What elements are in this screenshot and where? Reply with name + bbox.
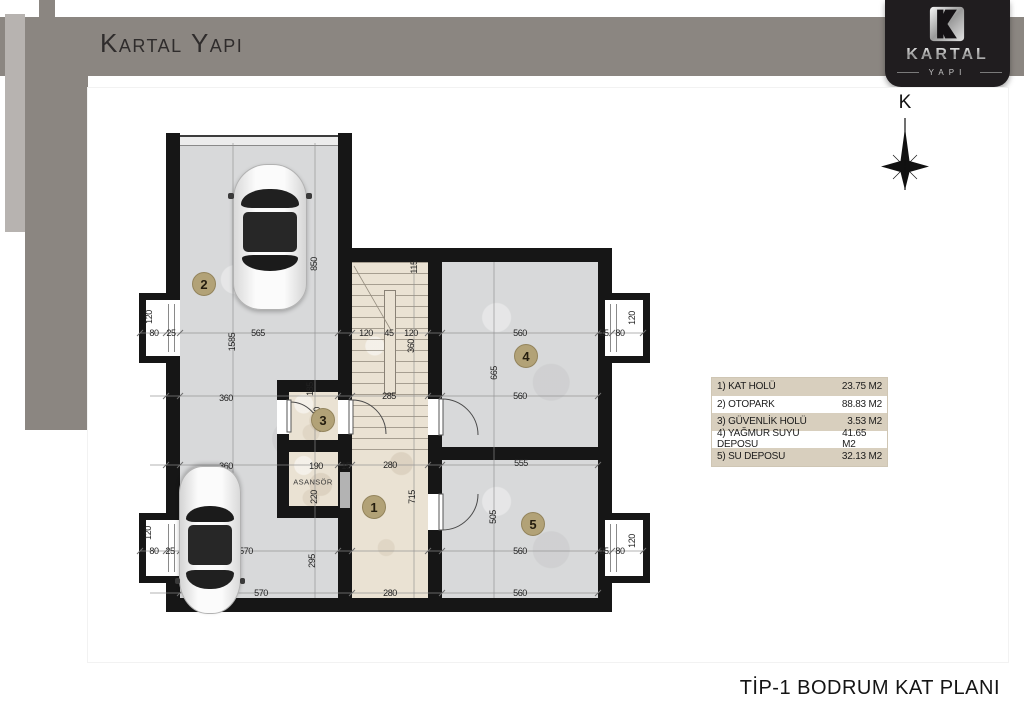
dimension-label: 295 bbox=[307, 554, 317, 568]
legend-area-value: 32.13 M2 bbox=[842, 451, 882, 462]
door-opening-room5 bbox=[428, 494, 442, 530]
logo-wordmark: KARTAL bbox=[885, 46, 1010, 64]
dimension-label: 190 bbox=[309, 461, 323, 471]
dimension-label: 220 bbox=[309, 490, 319, 504]
car-rear-window bbox=[186, 506, 233, 522]
room-number-badge: 2 bbox=[192, 272, 216, 296]
dimension-label: 120 bbox=[144, 310, 154, 324]
car-roof bbox=[188, 525, 233, 565]
company-logo: KARTAL YAPI bbox=[885, 0, 1010, 87]
legend-table: 1) KAT HOLÜ23.75 M22) OTOPARK88.83 M23) … bbox=[712, 378, 887, 466]
dimension-label: 120 bbox=[404, 328, 418, 338]
logo-subtitle: YAPI bbox=[885, 68, 1010, 77]
dimension-label: 80 bbox=[149, 328, 158, 338]
car-mirror bbox=[306, 193, 313, 199]
legend-row: 1) KAT HOLÜ23.75 M2 bbox=[712, 378, 887, 396]
logo-k-icon bbox=[929, 6, 965, 42]
light-well-right-bottom bbox=[605, 513, 650, 583]
dimension-label: 560 bbox=[513, 328, 527, 338]
company-name: Kartal Yapı bbox=[100, 28, 243, 59]
dimension-label: 1585 bbox=[227, 333, 237, 351]
page-title: TİP-1 BODRUM KAT PLANI bbox=[740, 677, 1000, 700]
floor-su-deposu bbox=[442, 460, 598, 598]
wall-room3-asansor bbox=[277, 440, 352, 452]
room-number-badge: 4 bbox=[514, 344, 538, 368]
legend-room-label: 4) YAĞMUR SUYU DEPOSU bbox=[717, 428, 842, 450]
left-accent-bar bbox=[25, 17, 88, 430]
dimension-label: 120 bbox=[627, 311, 637, 325]
stair-rail bbox=[384, 290, 396, 394]
dimension-label: 570 bbox=[239, 546, 253, 556]
dimension-label: 80 bbox=[615, 328, 624, 338]
dimension-label: 665 bbox=[489, 366, 499, 380]
legend-room-label: 2) OTOPARK bbox=[717, 399, 775, 410]
left-accent-bar-light bbox=[5, 14, 25, 232]
dimension-label: 25 bbox=[165, 546, 174, 556]
left-accent-stub bbox=[39, 0, 55, 18]
legend-room-label: 3) GÜVENLİK HOLÜ bbox=[717, 416, 807, 427]
room-number-badge: 3 bbox=[311, 408, 335, 432]
north-label: K bbox=[899, 92, 912, 114]
car-top-view bbox=[179, 466, 241, 614]
dimension-label: 360 bbox=[219, 393, 233, 403]
elevator-label: ASANSÖR bbox=[293, 478, 332, 487]
dimension-label: 280 bbox=[383, 588, 397, 598]
dimension-label: 185 bbox=[305, 382, 315, 396]
slide: Kartal Yapı KARTAL YAPI bbox=[0, 0, 1024, 724]
legend-area-value: 41.65 M2 bbox=[842, 428, 882, 450]
room-number-badge: 1 bbox=[362, 495, 386, 519]
dimension-label: 560 bbox=[513, 546, 527, 556]
dimension-label: 120 bbox=[359, 328, 373, 338]
dimension-label: 565 bbox=[251, 328, 265, 338]
legend-row: 2) OTOPARK88.83 M2 bbox=[712, 396, 887, 414]
staircase bbox=[352, 262, 428, 452]
door-opening-room4 bbox=[428, 399, 442, 435]
dimension-label: 80 bbox=[149, 546, 158, 556]
dimension-label: 120 bbox=[143, 526, 153, 540]
dimension-label: 15 bbox=[341, 461, 350, 471]
dimension-label: 715 bbox=[407, 490, 417, 504]
dimension-label: 560 bbox=[513, 588, 527, 598]
dimension-label: 850 bbox=[309, 257, 319, 271]
dimension-label: 80 bbox=[615, 546, 624, 556]
dimension-label: 115 bbox=[409, 260, 419, 273]
legend-area-value: 23.75 M2 bbox=[842, 381, 882, 392]
car-mirror bbox=[228, 193, 235, 199]
legend-room-label: 5) SU DEPOSU bbox=[717, 451, 785, 462]
wall-garage-right bbox=[338, 133, 352, 612]
legend-area-value: 88.83 M2 bbox=[842, 399, 882, 410]
car-roof bbox=[243, 212, 296, 251]
dimension-label: 555 bbox=[514, 458, 528, 468]
dimension-label: 280 bbox=[383, 460, 397, 470]
dimension-label: 560 bbox=[513, 391, 527, 401]
light-well-right-top bbox=[605, 293, 650, 363]
door-opening-hall bbox=[338, 400, 352, 434]
legend-row: 4) YAĞMUR SUYU DEPOSU41.65 M2 bbox=[712, 431, 887, 449]
door-opening-room3 bbox=[277, 400, 289, 434]
dimension-label: 25 bbox=[166, 328, 175, 338]
legend-row: 5) SU DEPOSU32.13 M2 bbox=[712, 448, 887, 466]
garage-door bbox=[180, 135, 338, 146]
car-top-view bbox=[233, 164, 307, 310]
legend-room-label: 1) KAT HOLÜ bbox=[717, 381, 776, 392]
elevator-door bbox=[340, 472, 350, 508]
dimension-label: 285 bbox=[382, 391, 396, 401]
dimension-label: 45 bbox=[384, 328, 393, 338]
dimension-label: 505 bbox=[488, 510, 498, 524]
legend-area-value: 3.53 M2 bbox=[847, 416, 882, 427]
dimension-label: 360 bbox=[406, 339, 416, 353]
room-number-badge: 5 bbox=[521, 512, 545, 536]
dimension-label: 120 bbox=[627, 534, 637, 548]
wall-top-rooms bbox=[338, 248, 612, 262]
dimension-label: 570 bbox=[254, 588, 268, 598]
dimension-label: 25 bbox=[599, 546, 608, 556]
dimension-label: 25 bbox=[599, 328, 608, 338]
